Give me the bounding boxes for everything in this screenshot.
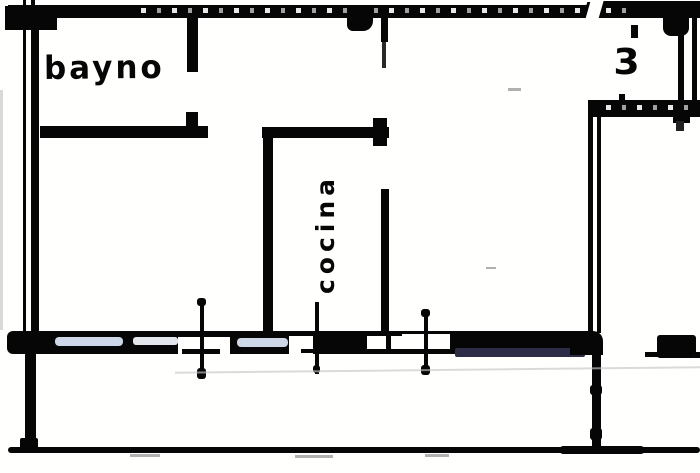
wall-kitchen-top-endcap — [373, 118, 387, 146]
window-2 — [133, 337, 178, 345]
window-4 — [367, 336, 386, 349]
cross-mark-1-bar — [182, 349, 220, 354]
ground-speck-2 — [295, 455, 333, 458]
cross-mark-1-top-blob — [197, 298, 206, 306]
faint-horizontal-line — [175, 366, 700, 373]
wall-stub-center — [381, 16, 388, 42]
noise-dash-2 — [486, 267, 496, 269]
corner-tick-b — [31, 0, 35, 8]
wall-step-tick — [619, 94, 625, 103]
floor-plan-canvas: bayno cocina 3 — [0, 0, 700, 473]
wall-bottom-thin-right — [694, 352, 700, 358]
window-3 — [237, 338, 288, 347]
wall-kitchen-left — [263, 136, 273, 333]
wall-right-outer — [678, 18, 684, 103]
room-label-kitchen: cocina — [311, 164, 341, 304]
wall-step-vertical-inner — [597, 115, 601, 333]
wall-tick-633 — [631, 25, 638, 38]
cross-mark-2-vertical — [315, 302, 319, 374]
wall-kitchen-right — [381, 189, 389, 333]
ground-speck-3 — [425, 454, 449, 457]
wall-left-inner — [31, 28, 39, 331]
ground-speck-1 — [130, 454, 160, 457]
wall-left-outer — [23, 28, 26, 331]
wall-step-lip-stub — [676, 121, 684, 131]
descender-right-blob-2 — [590, 428, 602, 440]
wall-step-vertical-outer — [588, 115, 593, 333]
descender-right-blob-1 — [590, 385, 602, 395]
wall-bathroom-right — [187, 18, 198, 72]
sill-shading-strip — [455, 348, 585, 357]
ground-line-thick-segment — [560, 446, 644, 454]
cross-mark-1-vertical — [200, 300, 204, 378]
noise-dash-1 — [508, 88, 521, 91]
corner-tick-a — [23, 0, 26, 8]
window-1 — [55, 337, 123, 346]
cross-mark-2-bar — [301, 349, 330, 353]
wall-top-blob-right — [663, 16, 689, 36]
cross-mark-3-top-blob — [421, 309, 430, 317]
wall-step-annotation-marks — [595, 105, 695, 110]
room-label-bathroom: bayno — [44, 49, 165, 88]
wall-top-annotation-marks — [130, 8, 635, 13]
scan-smudge-left — [0, 90, 3, 330]
wall-bathroom-door-jamb — [186, 112, 198, 128]
wall-right-inner — [692, 18, 697, 103]
corner-block-top-left — [5, 6, 57, 30]
wall-stub-center-faint — [382, 42, 386, 68]
wall-top-blob-mid — [347, 5, 373, 31]
wall-bottom-join-curve — [570, 331, 603, 355]
wall-bathroom-bottom — [40, 126, 208, 138]
pillar-block-bottom-right — [657, 335, 696, 358]
descender-left — [25, 353, 36, 450]
room-label-3: 3 — [613, 42, 639, 83]
wall-kitchen-top — [262, 127, 389, 138]
